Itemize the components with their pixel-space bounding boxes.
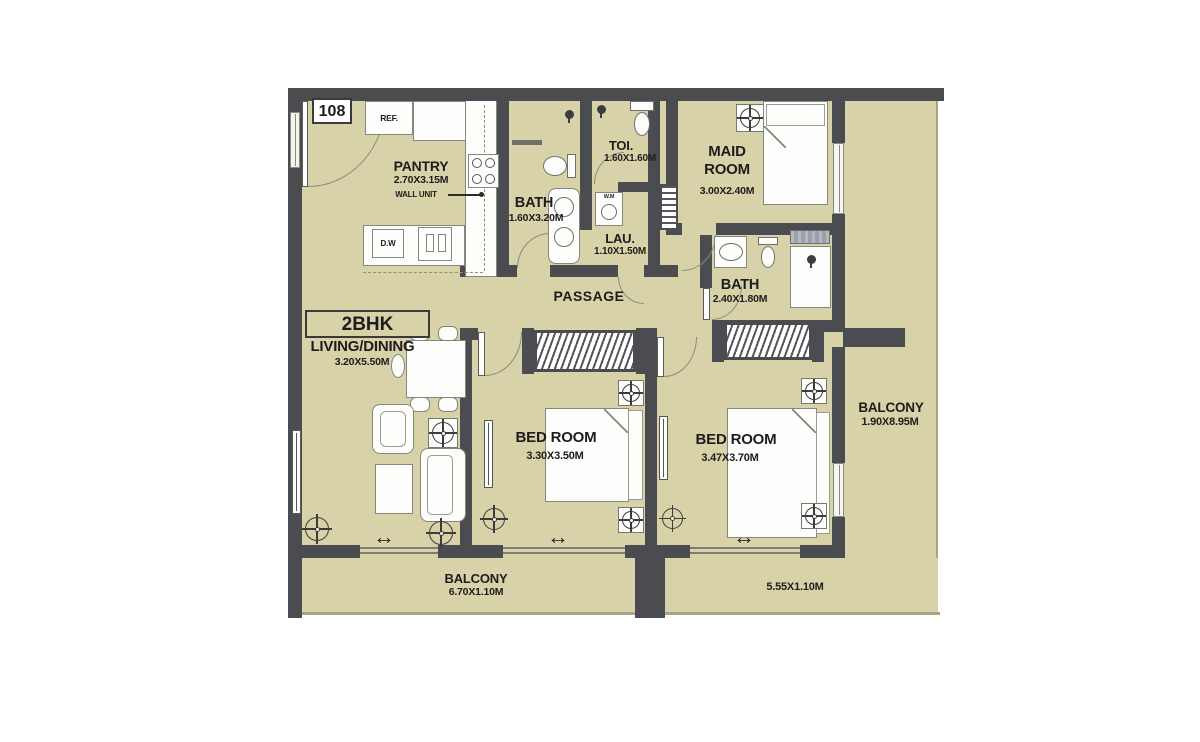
room-dims-living: 3.20X5.50M bbox=[312, 357, 412, 368]
floor-plan: REF. D.W W.M bbox=[288, 88, 944, 622]
room-label-bath2: BATH bbox=[705, 278, 775, 293]
wardrobe-end bbox=[812, 320, 824, 362]
sink-basin bbox=[426, 234, 434, 252]
wall-right-seg bbox=[832, 101, 845, 143]
kitchen-counter-right bbox=[465, 101, 497, 277]
tv-unit-bedroom2 bbox=[659, 416, 668, 480]
ceiling-fan-icon bbox=[480, 505, 508, 533]
bath2-vanity bbox=[714, 236, 747, 268]
bed-fold bbox=[764, 126, 786, 148]
unit-number-badge: 108 bbox=[312, 98, 352, 124]
balcony-bottom-edge bbox=[302, 612, 940, 615]
room-dims-laundry: 1.10X1.50M bbox=[576, 247, 664, 258]
toilet-tank bbox=[630, 101, 654, 111]
fridge: REF. bbox=[365, 101, 413, 135]
wall-balcony-stub bbox=[843, 328, 905, 347]
bed-pillow bbox=[766, 104, 825, 126]
dishwasher: D.W bbox=[372, 229, 404, 258]
sofa-seat bbox=[427, 455, 453, 515]
wall-bath1-right bbox=[580, 101, 592, 230]
toilet-tank bbox=[567, 154, 576, 178]
wall-maid-bottom bbox=[678, 223, 682, 235]
washing-machine-label: W.M bbox=[596, 195, 622, 201]
sliding-door-sill bbox=[690, 552, 800, 554]
room-label-laundry: LAU. bbox=[590, 232, 650, 246]
room-dims-bedroom1: 3.30X3.50M bbox=[505, 451, 605, 463]
room-label-maid-line2: ROOM bbox=[692, 162, 762, 178]
laundry-shelf-icon bbox=[660, 184, 678, 230]
kitchen-sink bbox=[418, 227, 452, 261]
room-label-bedroom2: BED ROOM bbox=[671, 432, 801, 448]
window-bedroom2 bbox=[833, 463, 844, 517]
wardrobe-icon bbox=[534, 330, 636, 372]
shower-head-icon bbox=[565, 110, 574, 119]
washing-machine: W.M bbox=[595, 192, 623, 226]
toilet-tank bbox=[758, 237, 778, 245]
room-dims-bath1: 1.60X3.20M bbox=[491, 213, 581, 224]
window-maid bbox=[833, 143, 844, 214]
toilet-icon bbox=[761, 246, 775, 268]
room-label-pantry: PANTRY bbox=[371, 159, 471, 174]
wardrobe-end bbox=[636, 328, 648, 374]
room-label-bath1: BATH bbox=[494, 196, 574, 211]
sofa-icon bbox=[420, 448, 466, 522]
wash-basin-icon bbox=[554, 227, 574, 247]
room-label-balcony-bottom: BALCONY bbox=[436, 572, 516, 586]
wall-bedroom1-top bbox=[460, 328, 478, 340]
armchair-seat bbox=[380, 411, 406, 447]
room-dims-bath2: 2.40X1.80M bbox=[697, 294, 783, 305]
room-label-maid-line1: MAID bbox=[692, 144, 762, 160]
toilet-icon bbox=[543, 156, 567, 176]
dining-chair bbox=[438, 397, 458, 412]
wall-top bbox=[288, 88, 944, 101]
wall-unit-leader-line bbox=[448, 194, 480, 196]
fridge-label: REF. bbox=[366, 114, 412, 123]
dishwasher-label: D.W bbox=[373, 240, 403, 248]
ceiling-fan-icon bbox=[659, 505, 686, 532]
sink-basin bbox=[438, 234, 446, 252]
wall-passage-top bbox=[550, 265, 618, 277]
room-label-bedroom1: BED ROOM bbox=[491, 430, 621, 446]
dining-chair bbox=[438, 326, 458, 341]
wash-basin-icon bbox=[719, 243, 743, 261]
wall-kitchen-right bbox=[497, 101, 509, 277]
counter-dashed-line bbox=[484, 105, 485, 271]
room-dims-balcony-bottom-right: 5.55X1.10M bbox=[750, 582, 840, 594]
sliding-door-arrow-icon: ↔ bbox=[538, 526, 578, 548]
wall-unit-label: WALL UNIT bbox=[384, 191, 448, 199]
sliding-door-sill bbox=[360, 552, 438, 554]
armchair-icon bbox=[372, 404, 414, 454]
wardrobe-icon bbox=[724, 322, 812, 360]
wall-unit-leader-dot bbox=[479, 192, 484, 197]
bed-pillow bbox=[628, 410, 643, 500]
wall-right-seg bbox=[832, 347, 845, 463]
room-dims-maid: 3.00X2.40M bbox=[686, 186, 768, 197]
sliding-door-sill bbox=[503, 552, 625, 554]
room-dims-bedroom2: 3.47X3.70M bbox=[680, 453, 780, 465]
room-label-toilet: TOI. bbox=[590, 139, 652, 153]
bedroom1-door-leaf bbox=[478, 332, 485, 376]
wardrobe-end bbox=[712, 320, 724, 362]
tv-unit-living bbox=[292, 430, 301, 514]
ceiling-fan-icon bbox=[618, 380, 644, 406]
wall-bottom-seg bbox=[800, 545, 845, 558]
shower-head-icon bbox=[807, 255, 816, 264]
wall-passage-top bbox=[644, 265, 678, 277]
wall-bottom-seg bbox=[302, 545, 360, 558]
stove-burners bbox=[472, 158, 495, 184]
bath1-shelf bbox=[512, 140, 542, 145]
window-entry bbox=[290, 112, 300, 168]
ceiling-fan-icon bbox=[736, 104, 764, 132]
unit-type-badge: 2BHK bbox=[305, 310, 430, 338]
ceiling-fan-icon bbox=[618, 507, 644, 533]
room-label-balcony-right: BALCONY bbox=[845, 401, 937, 415]
shower-head-icon bbox=[597, 105, 606, 114]
counter-dashed-line bbox=[363, 272, 483, 273]
room-label-passage: PASSAGE bbox=[539, 289, 639, 304]
ceiling-fan-icon bbox=[428, 418, 458, 448]
coffee-table-icon bbox=[375, 464, 413, 514]
bed-fold bbox=[792, 409, 816, 433]
sliding-door-arrow-icon: ↔ bbox=[364, 526, 404, 548]
ceiling-fan-icon bbox=[302, 514, 332, 544]
wardrobe-end bbox=[522, 328, 534, 374]
ceiling-fan-icon bbox=[801, 378, 827, 404]
ceiling-fan-icon bbox=[426, 518, 456, 548]
shower-area bbox=[790, 246, 831, 308]
toilet-icon bbox=[634, 112, 650, 136]
ceiling-fan-icon bbox=[801, 503, 827, 529]
balcony-right-floor bbox=[832, 100, 938, 612]
threshold-mat bbox=[790, 230, 830, 244]
room-dims-balcony-bottom: 6.70X1.10M bbox=[431, 587, 521, 598]
maid-bed-icon bbox=[763, 101, 828, 205]
room-dims-toilet: 1.60X1.60M bbox=[588, 154, 672, 165]
washing-machine-drum bbox=[601, 204, 617, 220]
room-dims-balcony-right: 1.90X8.95M bbox=[844, 417, 936, 429]
stove-icon bbox=[468, 154, 499, 188]
bedroom2-door-leaf bbox=[657, 337, 664, 377]
sliding-door-arrow-icon: ↔ bbox=[724, 526, 764, 548]
balcony-bottom-floor bbox=[302, 558, 938, 612]
room-label-living: LIVING/DINING bbox=[290, 339, 435, 355]
room-dims-pantry: 2.70X3.15M bbox=[371, 175, 471, 186]
floor-plan-page: REF. D.W W.M bbox=[0, 0, 1200, 742]
